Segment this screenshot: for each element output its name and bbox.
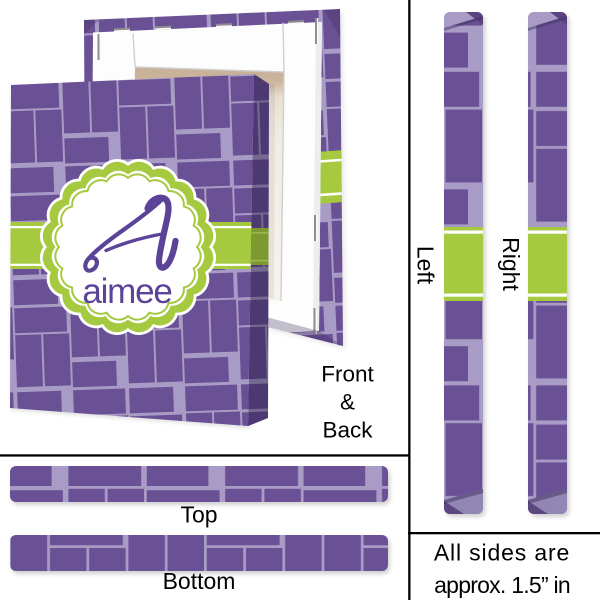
svg-text:Top: Top [180, 502, 217, 528]
svg-text:aimee: aimee [82, 272, 171, 311]
svg-text:Right: Right [498, 237, 524, 291]
svg-text:Bottom: Bottom [163, 568, 236, 594]
svg-text:Left: Left [413, 246, 439, 285]
svg-text:approx. 1.5” in: approx. 1.5” in [434, 572, 570, 598]
svg-text:Front: Front [321, 362, 374, 387]
svg-text:All sides are: All sides are [434, 540, 570, 566]
svg-text:Back: Back [322, 418, 373, 443]
svg-text:&: & [340, 390, 355, 415]
